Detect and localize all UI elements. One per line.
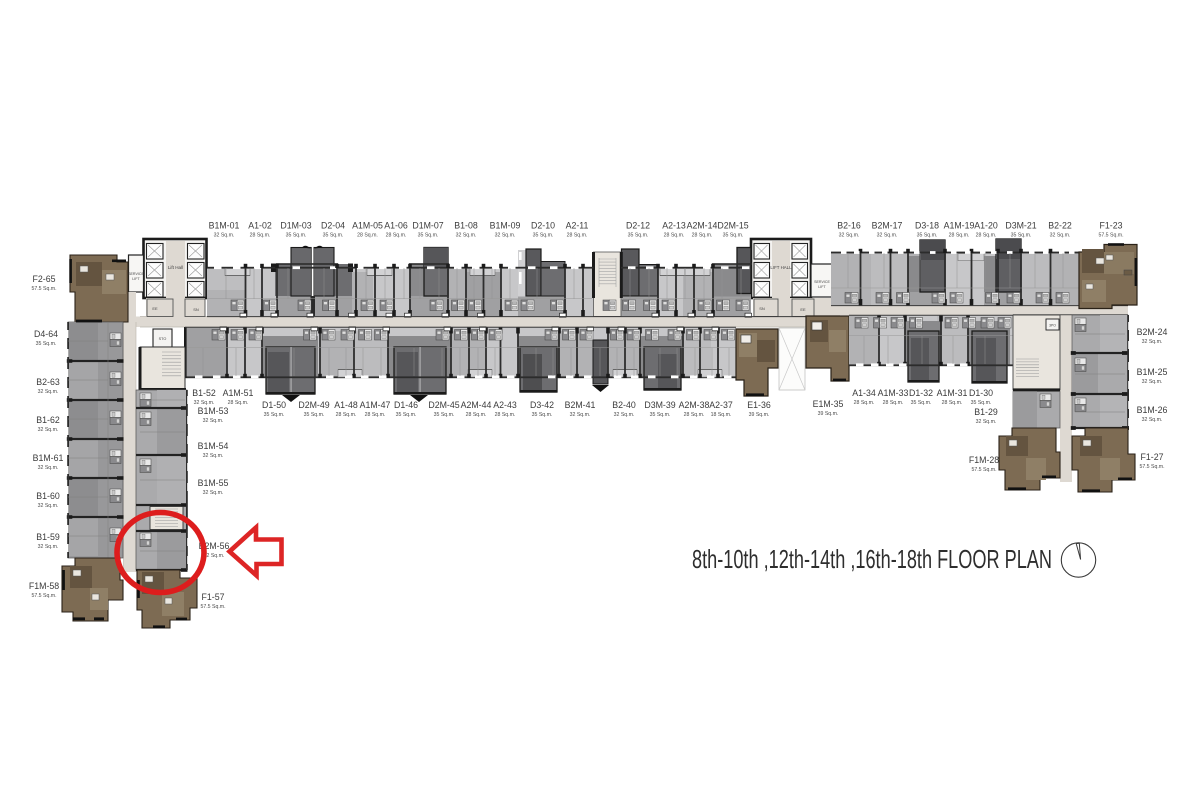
svg-text:32 Sq.m.: 32 Sq.m. [976, 419, 997, 425]
svg-text:32 Sq.m.: 32 Sq.m. [1142, 339, 1163, 345]
svg-text:D3-18: D3-18 [915, 221, 939, 231]
svg-text:EE: EE [800, 307, 806, 312]
svg-text:B1-59: B1-59 [36, 532, 60, 542]
svg-text:32 Sq.m.: 32 Sq.m. [456, 233, 477, 239]
svg-text:F1M-58: F1M-58 [29, 581, 59, 591]
svg-text:35 Sq.m.: 35 Sq.m. [533, 233, 554, 239]
svg-text:A1-34: A1-34 [852, 388, 876, 398]
svg-text:35 Sq.m.: 35 Sq.m. [917, 233, 938, 239]
svg-text:35 Sq.m.: 35 Sq.m. [286, 233, 307, 239]
svg-text:B1M-09: B1M-09 [490, 221, 521, 231]
svg-text:28 Sq.m.: 28 Sq.m. [365, 412, 386, 418]
svg-text:35 Sq.m.: 35 Sq.m. [323, 233, 344, 239]
svg-text:SN: SN [193, 307, 199, 312]
svg-text:28 Sq.m.: 28 Sq.m. [250, 233, 271, 239]
svg-text:35 Sq.m.: 35 Sq.m. [36, 341, 57, 347]
svg-text:Lift Hall: Lift Hall [168, 265, 183, 270]
svg-text:B1M-55: B1M-55 [198, 478, 229, 488]
svg-text:35 Sq.m.: 35 Sq.m. [911, 400, 932, 406]
svg-text:A2-37: A2-37 [709, 400, 733, 410]
svg-text:A2M-44: A2M-44 [461, 400, 492, 410]
svg-text:35 Sq.m.: 35 Sq.m. [628, 233, 649, 239]
svg-text:57.5 Sq.m.: 57.5 Sq.m. [200, 604, 225, 610]
svg-text:35 Sq.m.: 35 Sq.m. [971, 400, 992, 406]
svg-text:D2-04: D2-04 [321, 221, 345, 231]
svg-text:32 Sq.m.: 32 Sq.m. [38, 503, 59, 509]
svg-text:B2-16: B2-16 [837, 221, 861, 231]
svg-text:35 Sq.m.: 35 Sq.m. [264, 412, 285, 418]
svg-text:B1-08: B1-08 [454, 221, 478, 231]
svg-text:STO: STO [159, 337, 167, 341]
svg-text:28 Sq.m.: 28 Sq.m. [692, 233, 713, 239]
svg-text:28 Sq.m.: 28 Sq.m. [883, 400, 904, 406]
svg-text:35 Sq.m.: 35 Sq.m. [434, 412, 455, 418]
svg-text:D2M-15: D2M-15 [717, 221, 748, 231]
svg-text:32 Sq.m.: 32 Sq.m. [839, 233, 860, 239]
svg-text:35 Sq.m.: 35 Sq.m. [723, 233, 744, 239]
svg-text:28 Sq.m.: 28 Sq.m. [386, 233, 407, 239]
svg-text:SERVICE: SERVICE [128, 272, 144, 276]
svg-text:18 Sq.m.: 18 Sq.m. [711, 412, 732, 418]
svg-text:B1M-26: B1M-26 [1137, 405, 1168, 415]
svg-text:39 Sq.m.: 39 Sq.m. [749, 412, 770, 418]
svg-text:32 Sq.m.: 32 Sq.m. [570, 412, 591, 418]
svg-text:32 Sq.m.: 32 Sq.m. [1142, 379, 1163, 385]
svg-text:B1M-01: B1M-01 [209, 221, 240, 231]
svg-text:E1-36: E1-36 [747, 400, 771, 410]
svg-text:32 Sq.m.: 32 Sq.m. [203, 418, 224, 424]
svg-text:35 Sq.m.: 35 Sq.m. [532, 412, 553, 418]
svg-text:B2M-17: B2M-17 [872, 221, 903, 231]
svg-text:A2-11: A2-11 [566, 221, 589, 231]
svg-text:32 Sq.m.: 32 Sq.m. [38, 465, 59, 471]
svg-text:32 Sq.m.: 32 Sq.m. [1050, 233, 1071, 239]
svg-text:SN: SN [759, 306, 765, 311]
svg-text:D2M-49: D2M-49 [298, 400, 329, 410]
svg-text:57.5 Sq.m.: 57.5 Sq.m. [1098, 233, 1123, 239]
svg-text:D3M-21: D3M-21 [1005, 221, 1036, 231]
svg-text:D1-50: D1-50 [262, 400, 286, 410]
svg-text:32 Sq.m.: 32 Sq.m. [38, 544, 59, 550]
svg-text:28 Sq.m.: 28 Sq.m. [854, 400, 875, 406]
svg-text:B1-29: B1-29 [974, 407, 998, 417]
svg-text:F1-23: F1-23 [1100, 221, 1123, 231]
svg-text:B2-63: B2-63 [36, 377, 60, 387]
svg-text:D3M-39: D3M-39 [644, 400, 675, 410]
svg-text:A1M-19: A1M-19 [944, 221, 975, 231]
svg-text:35 Sq.m.: 35 Sq.m. [1011, 233, 1032, 239]
svg-text:28 Sq.m.: 28 Sq.m. [949, 233, 970, 239]
svg-text:A1M-05: A1M-05 [352, 221, 383, 231]
svg-text:28 Sq.m.: 28 Sq.m. [664, 233, 685, 239]
svg-text:28 Sq.m.: 28 Sq.m. [567, 233, 588, 239]
svg-text:D1M-07: D1M-07 [412, 221, 443, 231]
svg-text:57.5 Sq.m.: 57.5 Sq.m. [31, 593, 56, 599]
svg-text:A1-20: A1-20 [974, 221, 998, 231]
svg-text:A1-48: A1-48 [334, 400, 358, 410]
svg-text:32 Sq.m.: 32 Sq.m. [203, 453, 224, 459]
svg-text:35 Sq.m.: 35 Sq.m. [418, 233, 439, 239]
svg-text:A2-43: A2-43 [493, 400, 517, 410]
svg-text:LIFT HALL: LIFT HALL [770, 265, 792, 270]
svg-text:32 Sq.m.: 32 Sq.m. [38, 427, 59, 433]
svg-text:A1-06: A1-06 [384, 221, 408, 231]
svg-text:D2M-45: D2M-45 [428, 400, 459, 410]
svg-text:D4-64: D4-64 [34, 329, 58, 339]
svg-text:A1M-47: A1M-47 [360, 400, 391, 410]
svg-text:B1-62: B1-62 [36, 415, 60, 425]
svg-text:35 Sq.m.: 35 Sq.m. [304, 412, 325, 418]
svg-text:B1M-61: B1M-61 [33, 453, 64, 463]
svg-text:28 Sq.m.: 28 Sq.m. [228, 400, 249, 406]
svg-text:D2-12: D2-12 [626, 221, 650, 231]
svg-text:F1-57: F1-57 [202, 592, 225, 602]
svg-text:35 Sq.m.: 35 Sq.m. [650, 412, 671, 418]
svg-text:B2M-24: B2M-24 [1137, 327, 1168, 337]
svg-text:F1-27: F1-27 [1141, 452, 1164, 462]
svg-text:D3-42: D3-42 [530, 400, 554, 410]
svg-text:28 Sq.m.: 28 Sq.m. [684, 412, 705, 418]
svg-text:A1M-33: A1M-33 [878, 388, 909, 398]
svg-text:D2-10: D2-10 [531, 221, 555, 231]
svg-text:F2-65: F2-65 [33, 274, 56, 284]
svg-text:32 Sq.m.: 32 Sq.m. [38, 389, 59, 395]
svg-text:E1M-35: E1M-35 [813, 399, 844, 409]
svg-text:32 Sq.m.: 32 Sq.m. [614, 412, 635, 418]
svg-text:28 Sq.m.: 28 Sq.m. [942, 400, 963, 406]
svg-text:D1-46: D1-46 [394, 400, 418, 410]
svg-text:3PO: 3PO [1049, 324, 1056, 328]
svg-text:57.5 Sq.m.: 57.5 Sq.m. [31, 286, 56, 292]
svg-text:32 Sq.m.: 32 Sq.m. [203, 490, 224, 496]
svg-text:B1-52: B1-52 [192, 388, 216, 398]
svg-text:B1M-25: B1M-25 [1137, 367, 1168, 377]
svg-text:57.5 Sq.m.: 57.5 Sq.m. [1139, 464, 1164, 470]
svg-text:LIFT: LIFT [132, 277, 140, 281]
svg-text:28 Sq.m.: 28 Sq.m. [357, 233, 378, 239]
svg-text:39 Sq.m.: 39 Sq.m. [818, 411, 839, 417]
svg-text:B2M-41: B2M-41 [565, 400, 596, 410]
svg-text:B2-22: B2-22 [1048, 221, 1072, 231]
svg-text:35 Sq.m.: 35 Sq.m. [396, 412, 417, 418]
svg-text:32 Sq.m.: 32 Sq.m. [1142, 417, 1163, 423]
svg-text:57.5 Sq.m.: 57.5 Sq.m. [971, 467, 996, 473]
svg-text:28 Sq.m.: 28 Sq.m. [976, 233, 997, 239]
svg-text:A2M-38: A2M-38 [679, 400, 710, 410]
svg-text:A2M-14: A2M-14 [687, 221, 718, 231]
svg-text:28 Sq.m.: 28 Sq.m. [466, 412, 487, 418]
svg-text:A1-02: A1-02 [248, 221, 272, 231]
svg-text:F1M-28: F1M-28 [969, 455, 999, 465]
svg-text:8th-10th ,12th-14th ,16th-18th: 8th-10th ,12th-14th ,16th-18th FLOOR PLA… [692, 544, 1052, 574]
svg-text:EE: EE [152, 306, 158, 311]
svg-text:D1M-03: D1M-03 [280, 221, 311, 231]
svg-text:A1M-51: A1M-51 [223, 388, 254, 398]
svg-text:32 Sq.m.: 32 Sq.m. [495, 233, 516, 239]
svg-text:B1M-54: B1M-54 [198, 441, 229, 451]
svg-text:28 Sq.m.: 28 Sq.m. [336, 412, 357, 418]
svg-text:28 Sq.m.: 28 Sq.m. [495, 412, 516, 418]
svg-text:A2-13: A2-13 [662, 221, 686, 231]
svg-text:SERVICE: SERVICE [814, 280, 830, 284]
svg-text:A1M-31: A1M-31 [937, 388, 968, 398]
svg-text:B1-60: B1-60 [36, 491, 60, 501]
svg-text:D1-30: D1-30 [969, 388, 993, 398]
svg-text:B2-40: B2-40 [612, 400, 636, 410]
svg-text:LIFT: LIFT [818, 285, 826, 289]
svg-text:B1M-53: B1M-53 [198, 406, 229, 416]
svg-text:32 Sq.m.: 32 Sq.m. [877, 233, 898, 239]
svg-text:32 Sq.m.: 32 Sq.m. [214, 233, 235, 239]
svg-text:D1-32: D1-32 [909, 388, 933, 398]
